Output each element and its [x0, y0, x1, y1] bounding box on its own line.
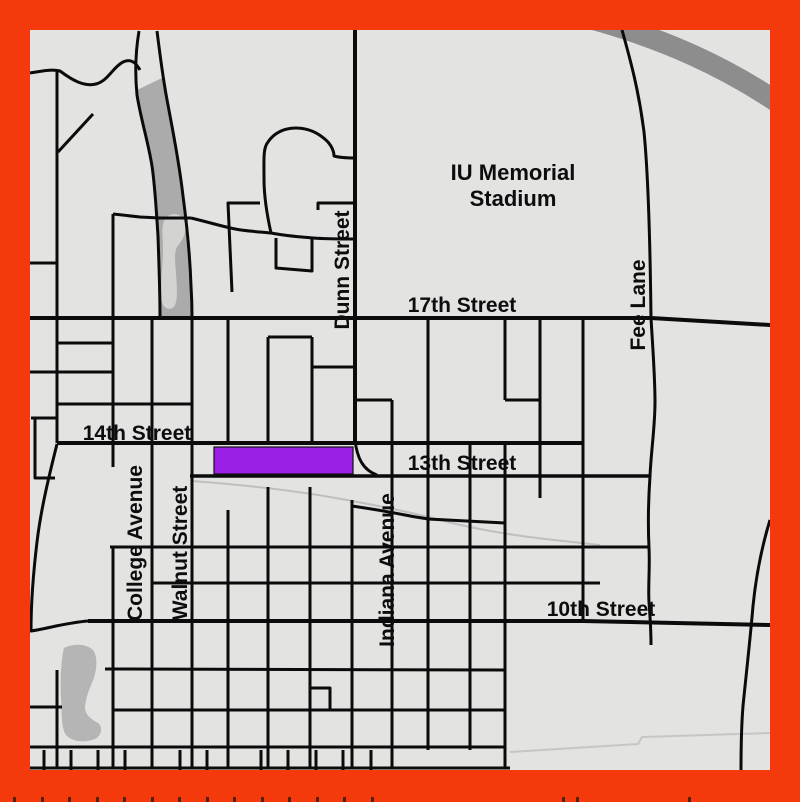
- highlighted-block: [214, 447, 353, 474]
- stadium-label-line-1: IU Memorial: [451, 160, 576, 185]
- border-tick: [288, 797, 291, 802]
- border-tick: [151, 797, 154, 802]
- border-right: [770, 0, 800, 802]
- border-tick: [316, 797, 319, 802]
- road-y670: [105, 669, 505, 670]
- street-label-14th: 14th Street: [83, 422, 192, 445]
- border-tick: [68, 797, 71, 802]
- border-tick: [576, 797, 579, 802]
- street-label-fee: Fee Lane: [627, 259, 650, 350]
- border-tick: [206, 797, 209, 802]
- street-label-17th: 17th Street: [408, 294, 517, 317]
- street-label-college: College Avenue: [124, 465, 147, 621]
- street-label-indiana: Indiana Avenue: [376, 493, 399, 647]
- border-bottom: [0, 770, 800, 802]
- street-label-dunn: Dunn Street: [331, 210, 354, 329]
- map-screenshot: IU MemorialStadium17th Street14th Street…: [0, 0, 800, 802]
- border-tick: [178, 797, 181, 802]
- border-tick: [343, 797, 346, 802]
- border-tick: [123, 797, 126, 802]
- street-label-10th: 10th Street: [547, 598, 656, 621]
- border-tick: [261, 797, 264, 802]
- border-tick: [13, 797, 16, 802]
- map-background: [30, 30, 770, 770]
- border-tick: [96, 797, 99, 802]
- border-tick: [562, 797, 565, 802]
- street-label-walnut: Walnut Street: [169, 486, 192, 621]
- border-tick: [371, 797, 374, 802]
- street-label-13th: 13th Street: [408, 452, 517, 475]
- border-left: [0, 0, 30, 802]
- border-tick: [233, 797, 236, 802]
- border-tick: [41, 797, 44, 802]
- campus-map: IU MemorialStadium17th Street14th Street…: [0, 0, 800, 802]
- stadium-label-line-2: Stadium: [470, 186, 557, 211]
- border-top: [0, 0, 800, 30]
- border-tick: [688, 797, 691, 802]
